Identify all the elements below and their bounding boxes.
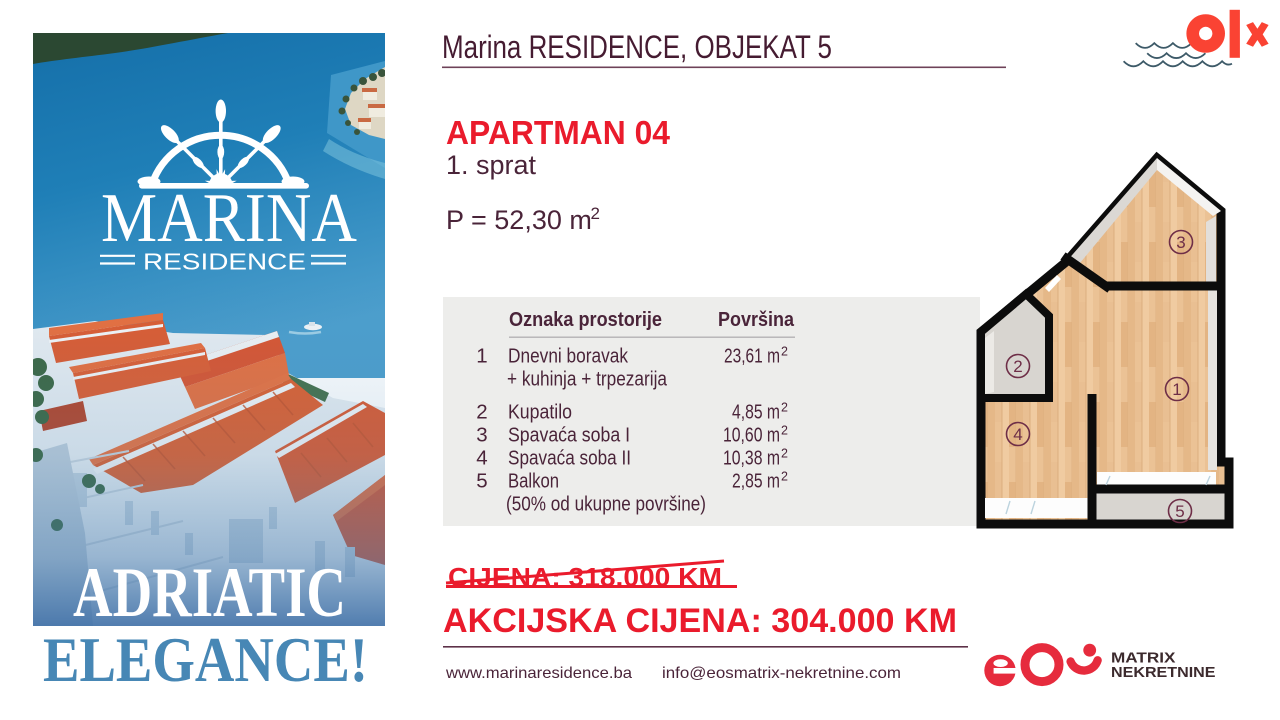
svg-text:Oznaka prostorije: Oznaka prostorije bbox=[509, 308, 662, 331]
svg-text:Površina: Površina bbox=[718, 308, 795, 331]
svg-text:Spavaća soba I: Spavaća soba I bbox=[508, 424, 630, 447]
svg-text:2: 2 bbox=[591, 204, 600, 223]
svg-text:5: 5 bbox=[476, 470, 487, 493]
svg-text:P = 52,30 m: P = 52,30 m bbox=[446, 205, 592, 235]
svg-text:Kupatilo: Kupatilo bbox=[508, 401, 572, 424]
svg-text:2: 2 bbox=[781, 345, 788, 359]
svg-text:AKCIJSKA CIJENA: 304.000 KM: AKCIJSKA CIJENA: 304.000 KM bbox=[443, 602, 957, 640]
svg-text:4: 4 bbox=[476, 447, 487, 470]
svg-text:5: 5 bbox=[1175, 502, 1184, 521]
svg-text:Spavaća soba II: Spavaća soba II bbox=[508, 447, 631, 470]
svg-text:www.marinaresidence.ba: www.marinaresidence.ba bbox=[445, 665, 632, 682]
svg-text:2: 2 bbox=[781, 447, 788, 461]
svg-text:Marina RESIDENCE, OBJEKAT 5: Marina RESIDENCE, OBJEKAT 5 bbox=[442, 29, 832, 65]
svg-text:3: 3 bbox=[476, 424, 487, 447]
svg-text:4,85 m: 4,85 m bbox=[732, 401, 780, 424]
svg-text:MARINA: MARINA bbox=[101, 180, 357, 257]
svg-text:4: 4 bbox=[1013, 425, 1022, 444]
svg-text:2: 2 bbox=[1013, 357, 1022, 376]
svg-text:Dnevni boravak: Dnevni boravak bbox=[508, 345, 629, 368]
svg-text:2: 2 bbox=[781, 470, 788, 484]
svg-text:ELEGANCE!: ELEGANCE! bbox=[43, 626, 368, 695]
svg-text:ADRIATIC: ADRIATIC bbox=[73, 554, 346, 626]
svg-text:RESIDENCE: RESIDENCE bbox=[143, 249, 306, 275]
svg-text:1. sprat: 1. sprat bbox=[446, 150, 536, 180]
svg-text:+ kuhinja + trpezarija: + kuhinja + trpezarija bbox=[507, 368, 667, 391]
svg-text:10,60 m: 10,60 m bbox=[723, 424, 780, 447]
svg-text:10,38 m: 10,38 m bbox=[723, 447, 780, 470]
svg-text:Balkon: Balkon bbox=[508, 470, 559, 493]
svg-text:NEKRETNINE: NEKRETNINE bbox=[1111, 664, 1216, 681]
svg-text:1: 1 bbox=[476, 345, 487, 368]
svg-text:2: 2 bbox=[781, 424, 788, 438]
svg-text:1: 1 bbox=[1172, 380, 1181, 399]
svg-text:3: 3 bbox=[1176, 233, 1185, 252]
svg-text:2: 2 bbox=[476, 401, 487, 424]
svg-text:info@eosmatrix-nekretnine.com: info@eosmatrix-nekretnine.com bbox=[662, 665, 901, 682]
svg-text:23,61 m: 23,61 m bbox=[724, 345, 780, 368]
svg-text:APARTMAN 04: APARTMAN 04 bbox=[446, 114, 671, 151]
svg-text:2: 2 bbox=[781, 401, 788, 415]
svg-text:2,85 m: 2,85 m bbox=[732, 470, 780, 493]
svg-text:(50% od ukupne površine): (50% od ukupne površine) bbox=[506, 493, 706, 516]
